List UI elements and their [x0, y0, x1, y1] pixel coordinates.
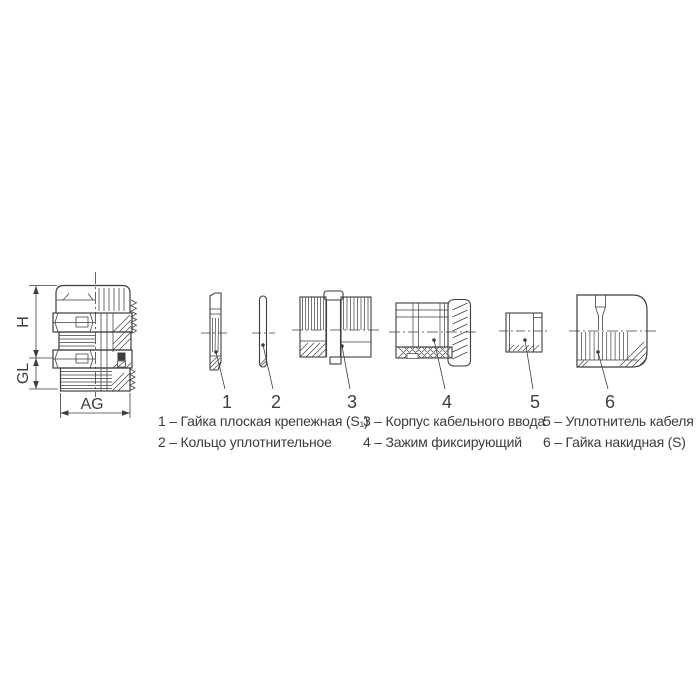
- part-1-flat-nut: [201, 293, 230, 389]
- dim-gl-label: GL: [15, 363, 32, 384]
- diagram-stage: H GL AG: [0, 0, 700, 700]
- part-3-right-thread: [344, 297, 369, 330]
- seal-ring-section: [118, 353, 126, 361]
- leader-line-3: [342, 346, 350, 389]
- cable-gland-diagram: H GL AG: [0, 0, 700, 700]
- arrowhead: [33, 350, 39, 358]
- arrowhead: [33, 381, 39, 389]
- part-2-sealing-ring: [252, 296, 275, 389]
- assembled-gland-view: [53, 272, 137, 397]
- legend-item-3: 3 – Корпус кабельного ввода: [363, 411, 545, 432]
- part-4-clamp: [389, 300, 477, 390]
- callout-4: 4: [442, 392, 452, 412]
- dim-h-label: H: [15, 316, 32, 328]
- dimension-gl: GL: [15, 358, 58, 389]
- legend-item-5: 5 – Уплотнитель кабеля: [543, 411, 694, 432]
- part-3-body: [292, 291, 379, 389]
- callout-3: 3: [347, 392, 357, 412]
- legend-column-1: 1 – Гайка плоская крепежная (S₁) 2 – Кол…: [158, 411, 369, 453]
- arrowhead: [33, 286, 39, 294]
- callout-2: 2: [271, 392, 281, 412]
- callout-numbers: 1 2 3 4 5 6: [222, 392, 615, 412]
- part-3-left-thread: [303, 297, 324, 330]
- part-6-cap-nut: [569, 295, 656, 389]
- callout-1: 1: [222, 392, 232, 412]
- part-5-hatch: [508, 345, 539, 351]
- legend: 1 – Гайка плоская крепежная (S₁) 2 – Кол…: [0, 411, 700, 459]
- part-6-hatch: [578, 342, 647, 367]
- legend-column-3: 5 – Уплотнитель кабеля 6 – Гайка накидна…: [543, 411, 694, 453]
- part-4-crosshatch: [398, 347, 451, 358]
- mid-thread-band: [59, 332, 131, 350]
- arrowhead: [33, 358, 39, 366]
- legend-item-6: 6 – Гайка накидная (S): [543, 432, 694, 453]
- legend-column-2: 3 – Корпус кабельного ввода 4 – Зажим фи…: [363, 411, 545, 453]
- part-6-internal-thread: [582, 332, 628, 360]
- part-5-cable-seal: [499, 313, 550, 389]
- legend-item-4: 4 – Зажим фиксирующий: [363, 432, 545, 453]
- legend-item-1: 1 – Гайка плоская крепежная (S₁): [158, 411, 369, 432]
- legend-item-2: 2 – Кольцо уплотнительное: [158, 432, 369, 453]
- callout-6: 6: [605, 392, 615, 412]
- dimension-h: H: [15, 286, 57, 359]
- callout-5: 5: [530, 392, 540, 412]
- cap-ribs: [99, 288, 124, 311]
